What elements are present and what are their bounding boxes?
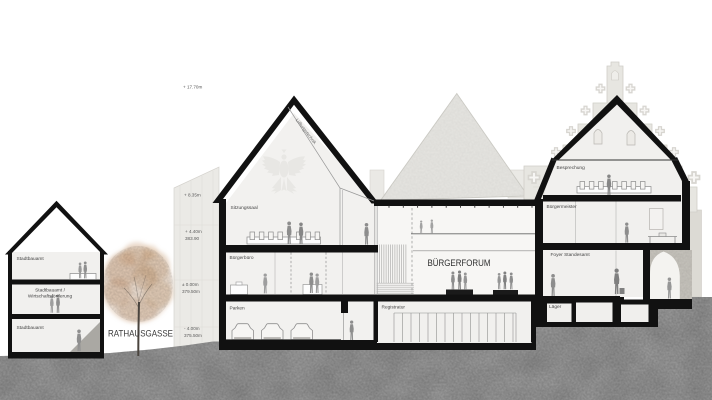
svg-text:Bürgerbüro: Bürgerbüro <box>230 255 254 261</box>
svg-text:Registratur: Registratur <box>382 305 406 311</box>
svg-text:+ 4.40m: + 4.40m <box>185 229 202 234</box>
svg-text:375.50m: 375.50m <box>184 333 202 338</box>
svg-text:Sitzungssaal: Sitzungssaal <box>231 205 258 211</box>
svg-text:+ 17.70m: + 17.70m <box>183 85 202 90</box>
svg-text:Stadtbauamt: Stadtbauamt <box>17 256 45 262</box>
svg-text:Stadtbauamt: Stadtbauamt <box>17 325 45 331</box>
svg-text:Läger: Läger <box>549 304 562 310</box>
svg-text:Wirtschaftsförderung: Wirtschaftsförderung <box>28 294 73 300</box>
svg-text:Besprechung: Besprechung <box>557 165 586 171</box>
svg-text:Foyer Standesamt: Foyer Standesamt <box>551 252 591 258</box>
svg-text:383.90: 383.90 <box>185 236 199 241</box>
svg-text:- 4.00m: - 4.00m <box>184 326 200 331</box>
svg-text:Stadtbauamt /: Stadtbauamt / <box>35 288 66 294</box>
svg-text:RATHAUSGASSE: RATHAUSGASSE <box>108 327 173 338</box>
svg-text:Bürgermeister: Bürgermeister <box>547 204 578 210</box>
svg-text:± 0.00m: ± 0.00m <box>182 282 199 287</box>
svg-text:+ 8.35m: + 8.35m <box>184 193 201 198</box>
svg-text:Parken: Parken <box>230 306 246 312</box>
svg-text:379.50m: 379.50m <box>182 289 200 294</box>
svg-text:BÜRGERFORUM: BÜRGERFORUM <box>428 257 491 268</box>
